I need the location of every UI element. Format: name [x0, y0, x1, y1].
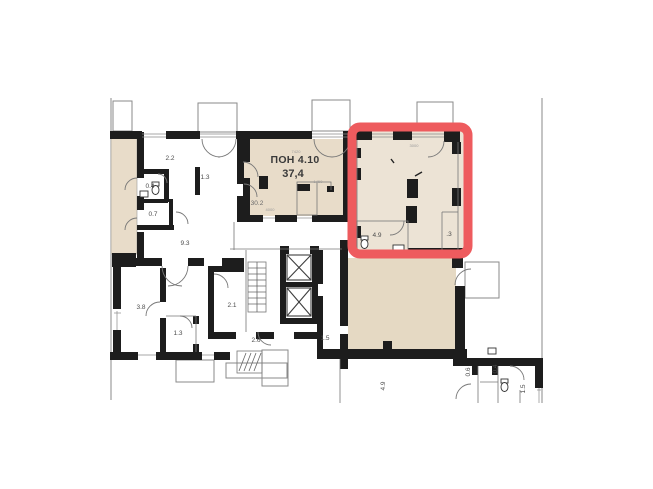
unit-area: 37,4	[282, 168, 304, 180]
unit-title: ПОН 4.10	[270, 154, 319, 166]
dim-pon-door: 1450	[314, 179, 324, 184]
room-label-2-2: 2.2	[165, 155, 174, 162]
room-label-1-3: 1.3	[200, 174, 209, 181]
room-label-0-4: 0.4	[145, 183, 154, 190]
room-label-2-6: 2.6	[251, 337, 260, 344]
room-label-partial: .3	[446, 231, 452, 238]
room-label-1-5b: 1.5	[520, 384, 527, 393]
dim-pon-inner: 4000	[266, 207, 276, 212]
room-label-0-6: 0.6	[465, 367, 472, 376]
room-label-0-7: 0.7	[148, 211, 157, 218]
room-label-0-4b: 0.4	[492, 364, 499, 373]
room-label-1-5: 1.5	[320, 335, 329, 342]
stairs-icon	[237, 262, 266, 373]
floor-plan-screenshot: 7420 ПОН 4.10 37,4 1450 30.2 4000 3000 2…	[0, 0, 653, 489]
room-label-4-9: 4.9	[372, 232, 381, 239]
room-label-3-8: 3.8	[136, 304, 145, 311]
room-label-1-3b: 1.3	[173, 330, 182, 337]
floor-plan-canvas: 7420 ПОН 4.10 37,4 1450 30.2 4000 3000 2…	[0, 0, 653, 489]
room-label-4-9b: 4.9	[380, 381, 387, 390]
room-label-9-3: 9.3	[180, 240, 189, 247]
unit-sub-area: 30.2	[251, 200, 264, 207]
room-label-2-1: 2.1	[227, 302, 236, 309]
dim-highlight-top: 3000	[410, 143, 420, 148]
